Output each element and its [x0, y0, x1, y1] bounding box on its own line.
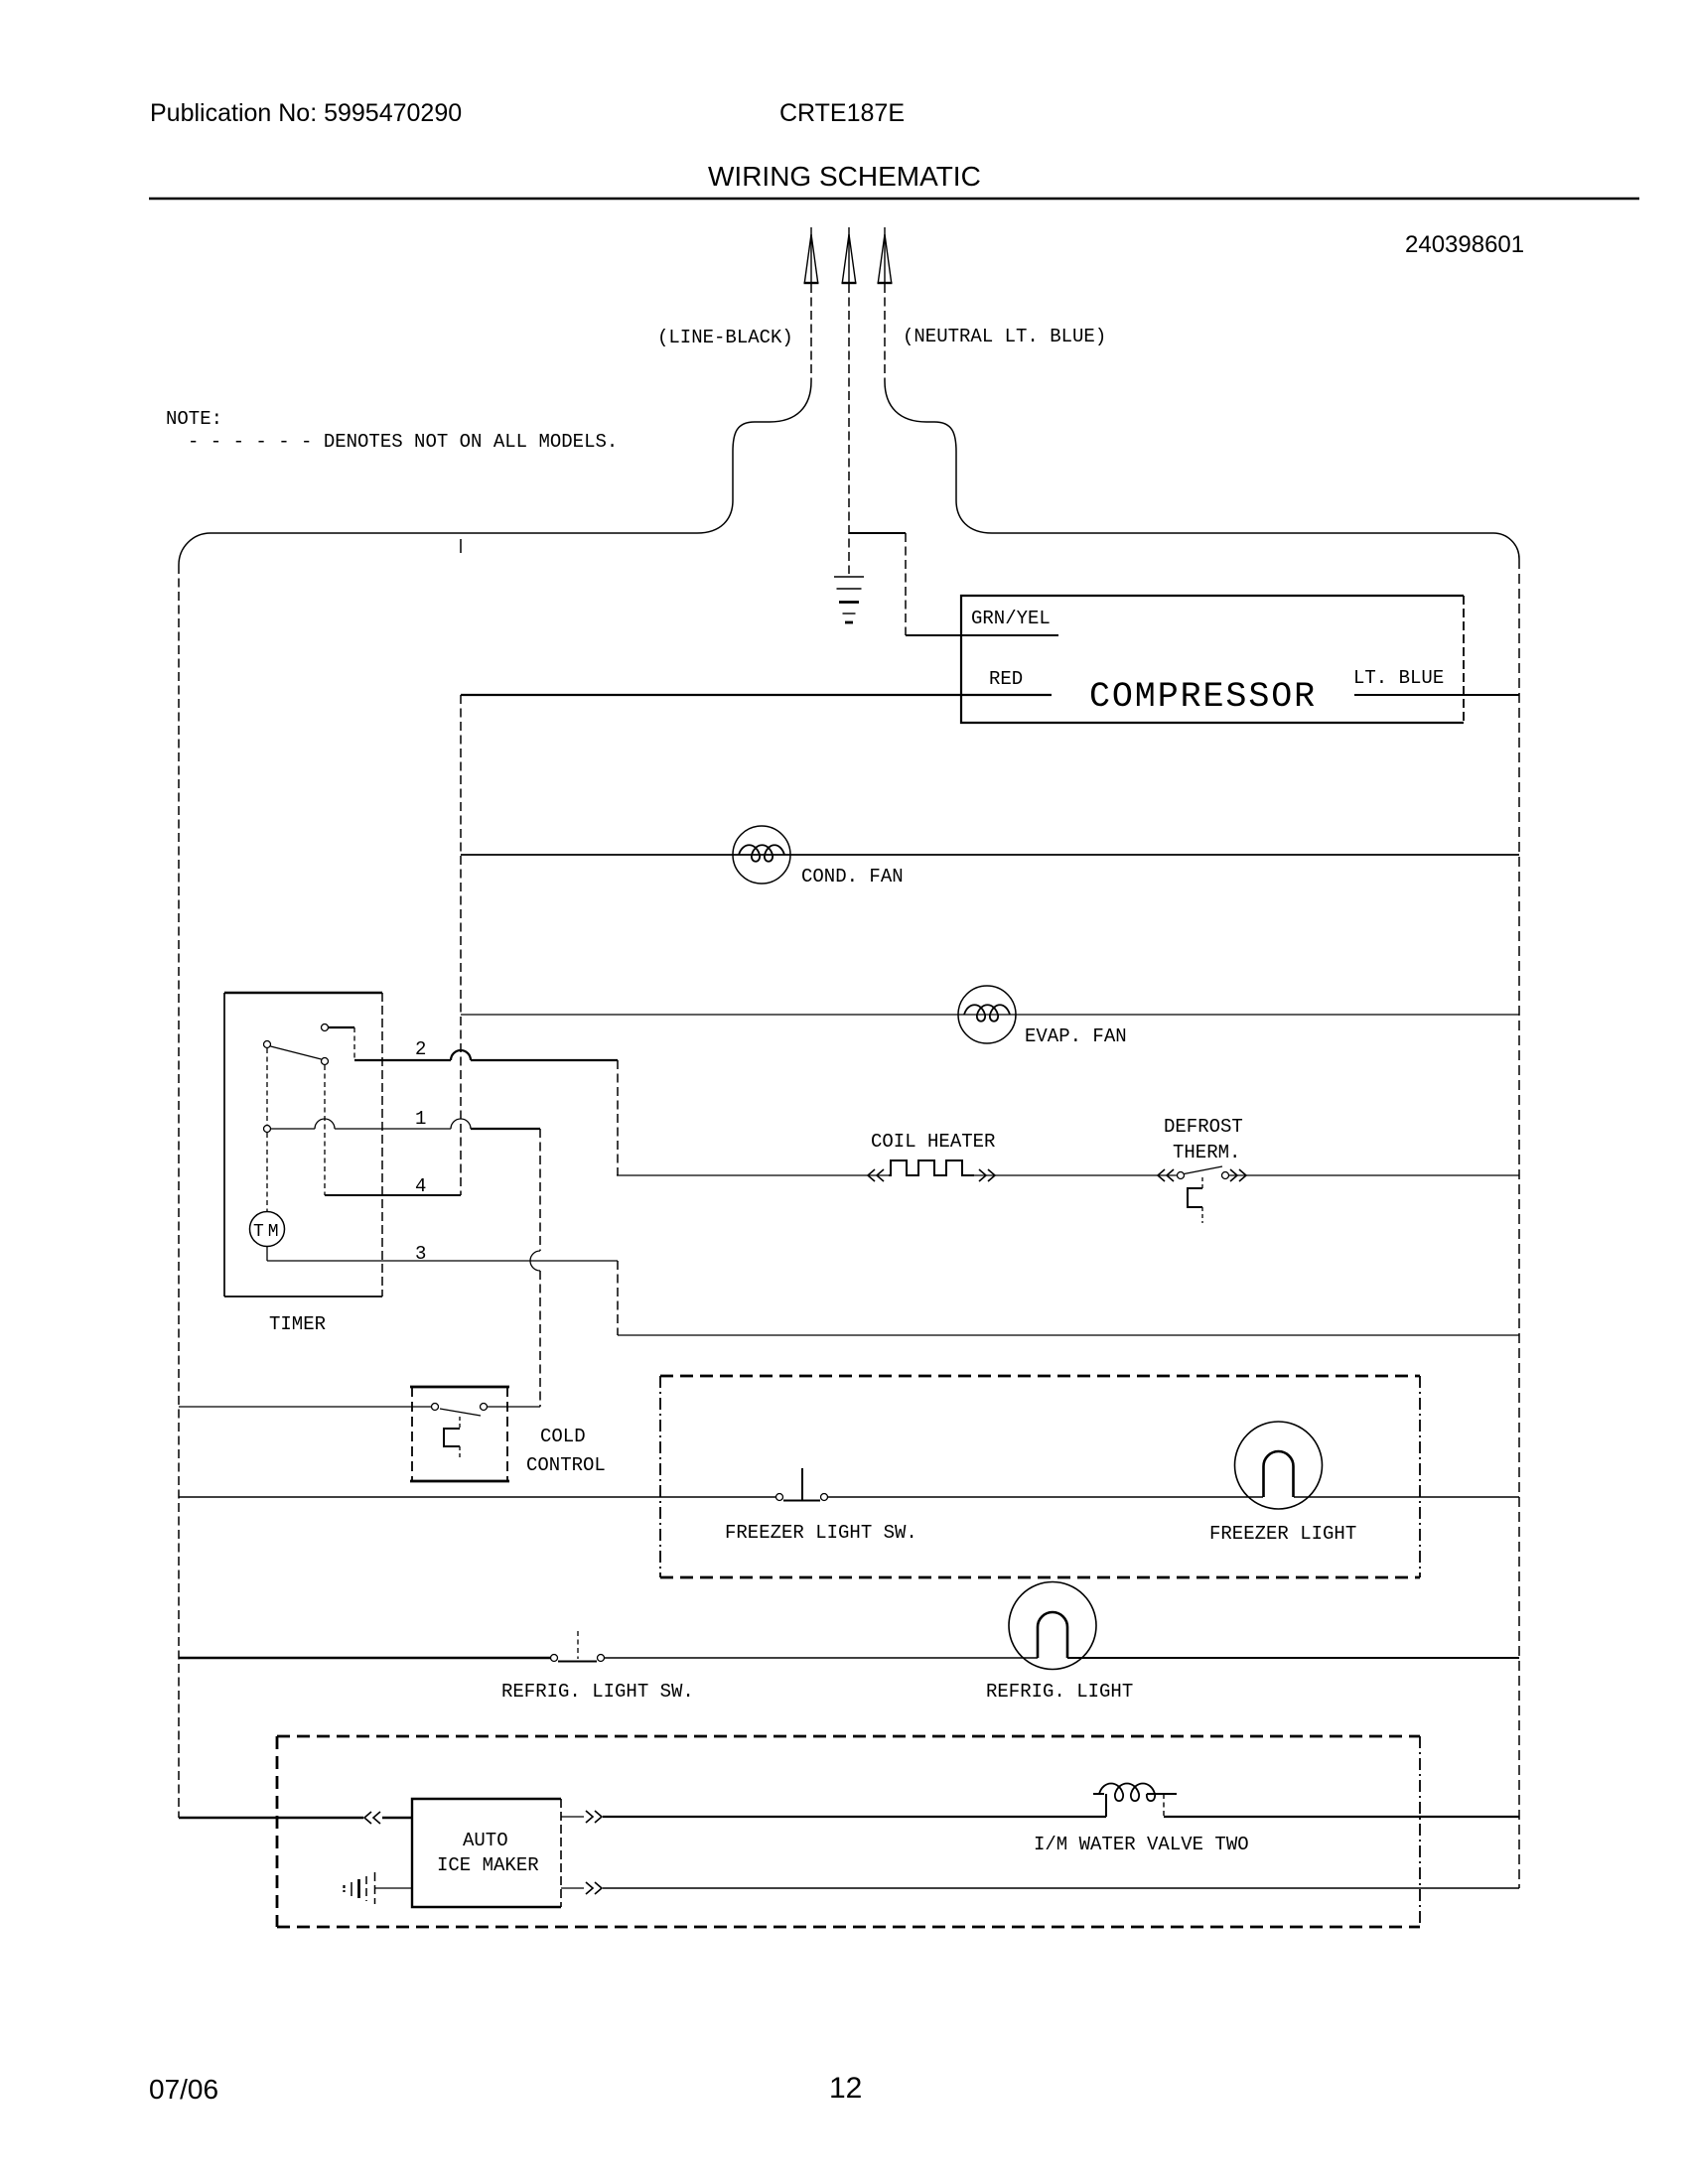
svg-text:REFRIG. LIGHT: REFRIG. LIGHT: [986, 1681, 1133, 1703]
svg-text:- - - - - - DENOTES NOT ON ALL: - - - - - - DENOTES NOT ON ALL MODELS.: [188, 431, 618, 453]
svg-text:(LINE-BLACK): (LINE-BLACK): [657, 327, 793, 348]
svg-text:COMPRESSOR: COMPRESSOR: [1089, 677, 1317, 717]
svg-text:THERM.: THERM.: [1173, 1142, 1240, 1163]
svg-text:NOTE:: NOTE:: [166, 408, 222, 430]
svg-text:12: 12: [829, 2072, 862, 2105]
svg-text:LT. BLUE: LT. BLUE: [1353, 667, 1444, 689]
svg-text:I/M WATER VALVE TWO: I/M WATER VALVE TWO: [1034, 1834, 1249, 1855]
svg-text:3: 3: [415, 1243, 426, 1265]
svg-text:FREEZER LIGHT: FREEZER LIGHT: [1209, 1523, 1356, 1545]
svg-text:240398601: 240398601: [1405, 231, 1524, 258]
svg-text:COND. FAN: COND. FAN: [801, 866, 904, 887]
svg-text:4: 4: [415, 1175, 426, 1197]
svg-text:COIL HEATER: COIL HEATER: [871, 1131, 995, 1153]
svg-text:AUTO: AUTO: [463, 1830, 508, 1851]
svg-text:Publication No: 5995470290: Publication No: 5995470290: [150, 99, 462, 127]
svg-text:CONTROL: CONTROL: [526, 1454, 606, 1476]
svg-text:1: 1: [415, 1108, 426, 1130]
svg-text:EVAP. FAN: EVAP. FAN: [1025, 1025, 1127, 1047]
svg-text:RED: RED: [989, 668, 1023, 690]
svg-text:(NEUTRAL LT. BLUE): (NEUTRAL LT. BLUE): [903, 326, 1106, 347]
svg-text:ICE MAKER: ICE MAKER: [437, 1854, 539, 1876]
svg-text:REFRIG. LIGHT SW.: REFRIG. LIGHT SW.: [501, 1681, 694, 1703]
svg-text:COLD: COLD: [540, 1426, 586, 1447]
svg-text:FREEZER LIGHT SW.: FREEZER LIGHT SW.: [725, 1522, 917, 1544]
svg-text:WIRING SCHEMATIC: WIRING SCHEMATIC: [708, 161, 981, 192]
svg-text:TIMER: TIMER: [269, 1313, 326, 1335]
svg-text:DEFROST: DEFROST: [1164, 1116, 1243, 1138]
svg-text:07/06: 07/06: [149, 2074, 218, 2105]
svg-text:TM: TM: [253, 1222, 283, 1242]
svg-text:CRTE187E: CRTE187E: [779, 99, 905, 127]
svg-text:GRN/YEL: GRN/YEL: [971, 608, 1051, 629]
svg-text:2: 2: [415, 1038, 426, 1060]
